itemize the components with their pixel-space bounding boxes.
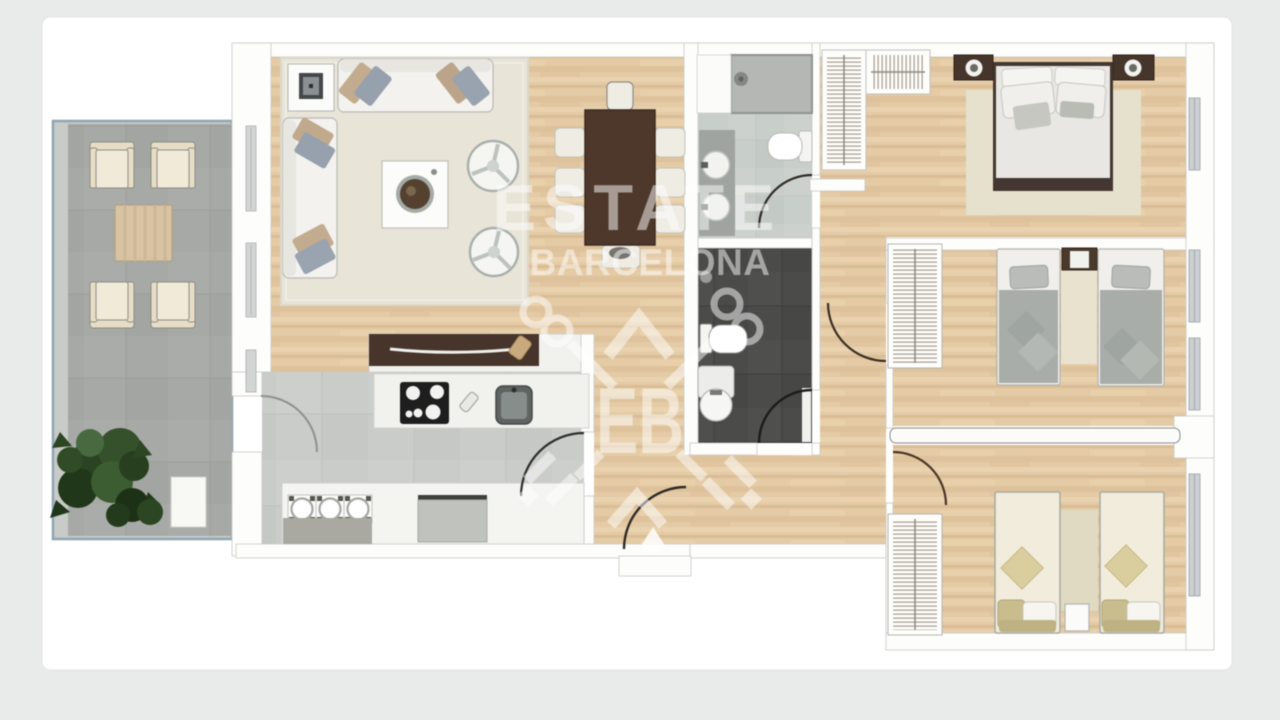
- svg-text:EB: EB: [596, 368, 684, 473]
- svg-text:BARCELONA: BARCELONA: [530, 242, 771, 283]
- svg-text:ESTATE: ESTATE: [493, 171, 782, 244]
